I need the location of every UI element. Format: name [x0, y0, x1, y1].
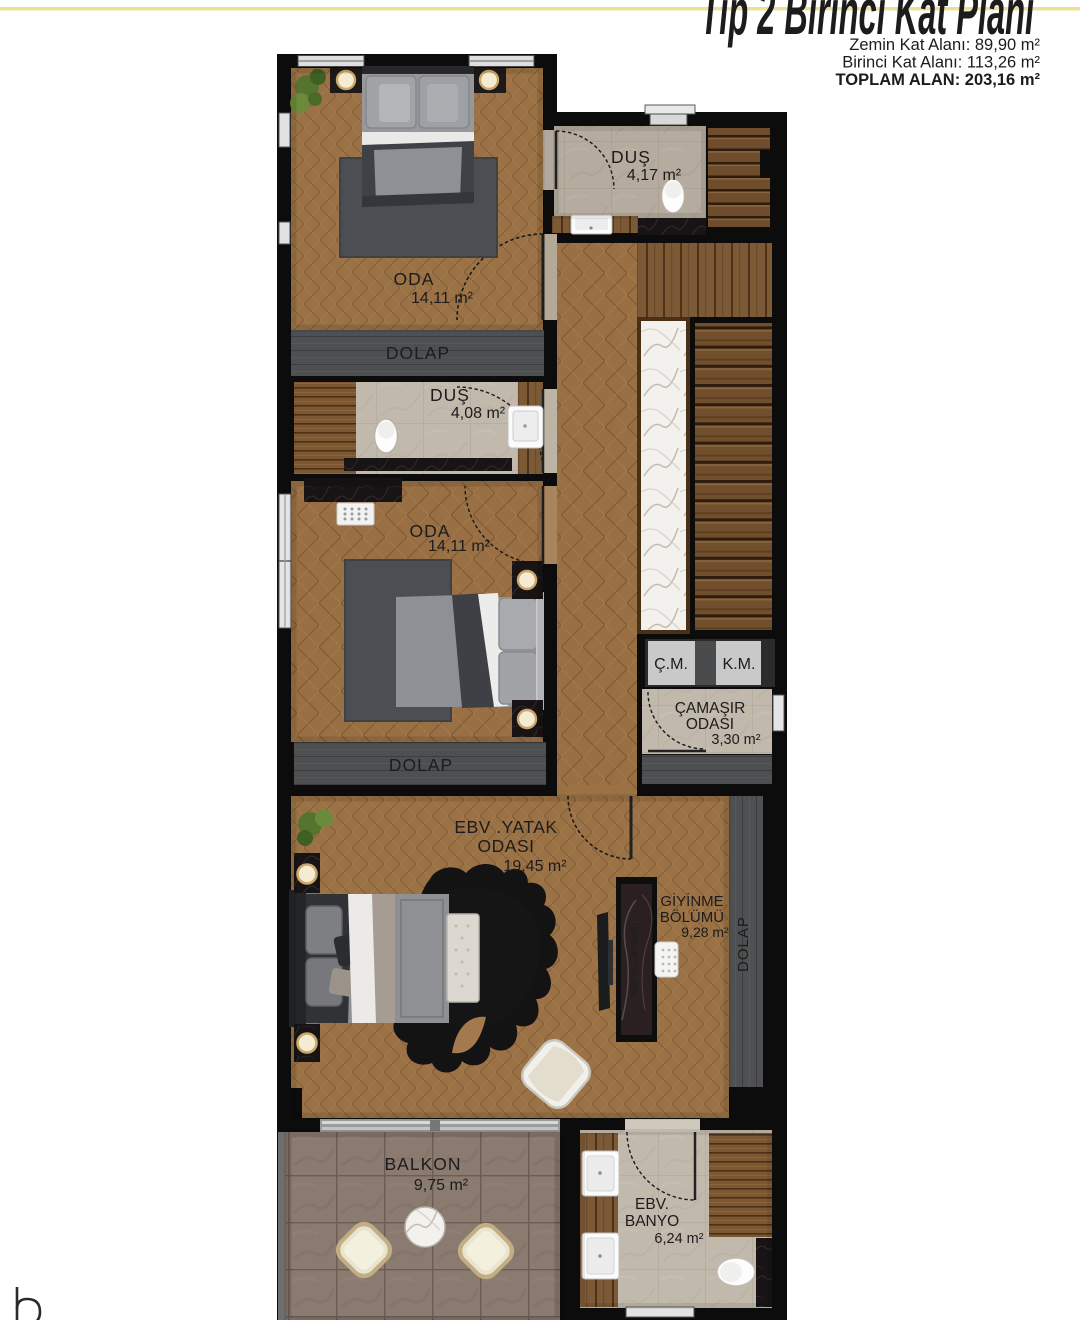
svg-text:ÇAMAŞIR: ÇAMAŞIR	[675, 700, 746, 717]
svg-text:4,08 m²: 4,08 m²	[451, 405, 506, 422]
svg-text:3,30 m²: 3,30 m²	[711, 732, 760, 748]
svg-text:ODASI: ODASI	[686, 716, 734, 733]
svg-text:DOLAP: DOLAP	[389, 755, 453, 775]
svg-text:DOLAP: DOLAP	[735, 916, 752, 972]
svg-text:9,28 m²: 9,28 m²	[681, 924, 729, 940]
svg-text:EBV.: EBV.	[635, 1196, 669, 1213]
svg-text:Birinci Kat Alanı: 113,26 m²: Birinci Kat Alanı: 113,26 m²	[842, 54, 1040, 72]
svg-text:TOPLAM ALAN: 203,16 m²: TOPLAM ALAN: 203,16 m²	[836, 71, 1041, 89]
svg-text:DUŞ: DUŞ	[430, 385, 470, 405]
svg-text:19,45 m²: 19,45 m²	[503, 858, 567, 875]
svg-text:6,24 m²: 6,24 m²	[654, 1231, 703, 1247]
svg-text:GİYİNME: GİYİNME	[660, 892, 723, 910]
svg-text:EBV .YATAK: EBV .YATAK	[454, 817, 557, 837]
svg-text:Zemin Kat Alanı: 89,90 m²: Zemin Kat Alanı: 89,90 m²	[849, 36, 1040, 54]
svg-text:4,17 m²: 4,17 m²	[627, 167, 682, 184]
svg-text:BANYO: BANYO	[625, 1213, 679, 1230]
svg-text:K.M.: K.M.	[723, 656, 756, 673]
svg-text:ODASI: ODASI	[478, 836, 535, 856]
svg-text:Ç.M.: Ç.M.	[654, 656, 688, 673]
svg-text:9,75 m²: 9,75 m²	[414, 1177, 469, 1194]
svg-text:14,11 m²: 14,11 m²	[411, 290, 474, 307]
svg-text:DOLAP: DOLAP	[386, 343, 450, 363]
svg-text:MAKYAJ MASASI: MAKYAJ MASASI	[629, 923, 639, 997]
svg-text:ODA: ODA	[394, 269, 435, 289]
svg-text:DUŞ: DUŞ	[611, 147, 651, 167]
svg-text:BALKON: BALKON	[385, 1154, 462, 1174]
svg-text:14,11 m²: 14,11 m²	[428, 538, 491, 555]
